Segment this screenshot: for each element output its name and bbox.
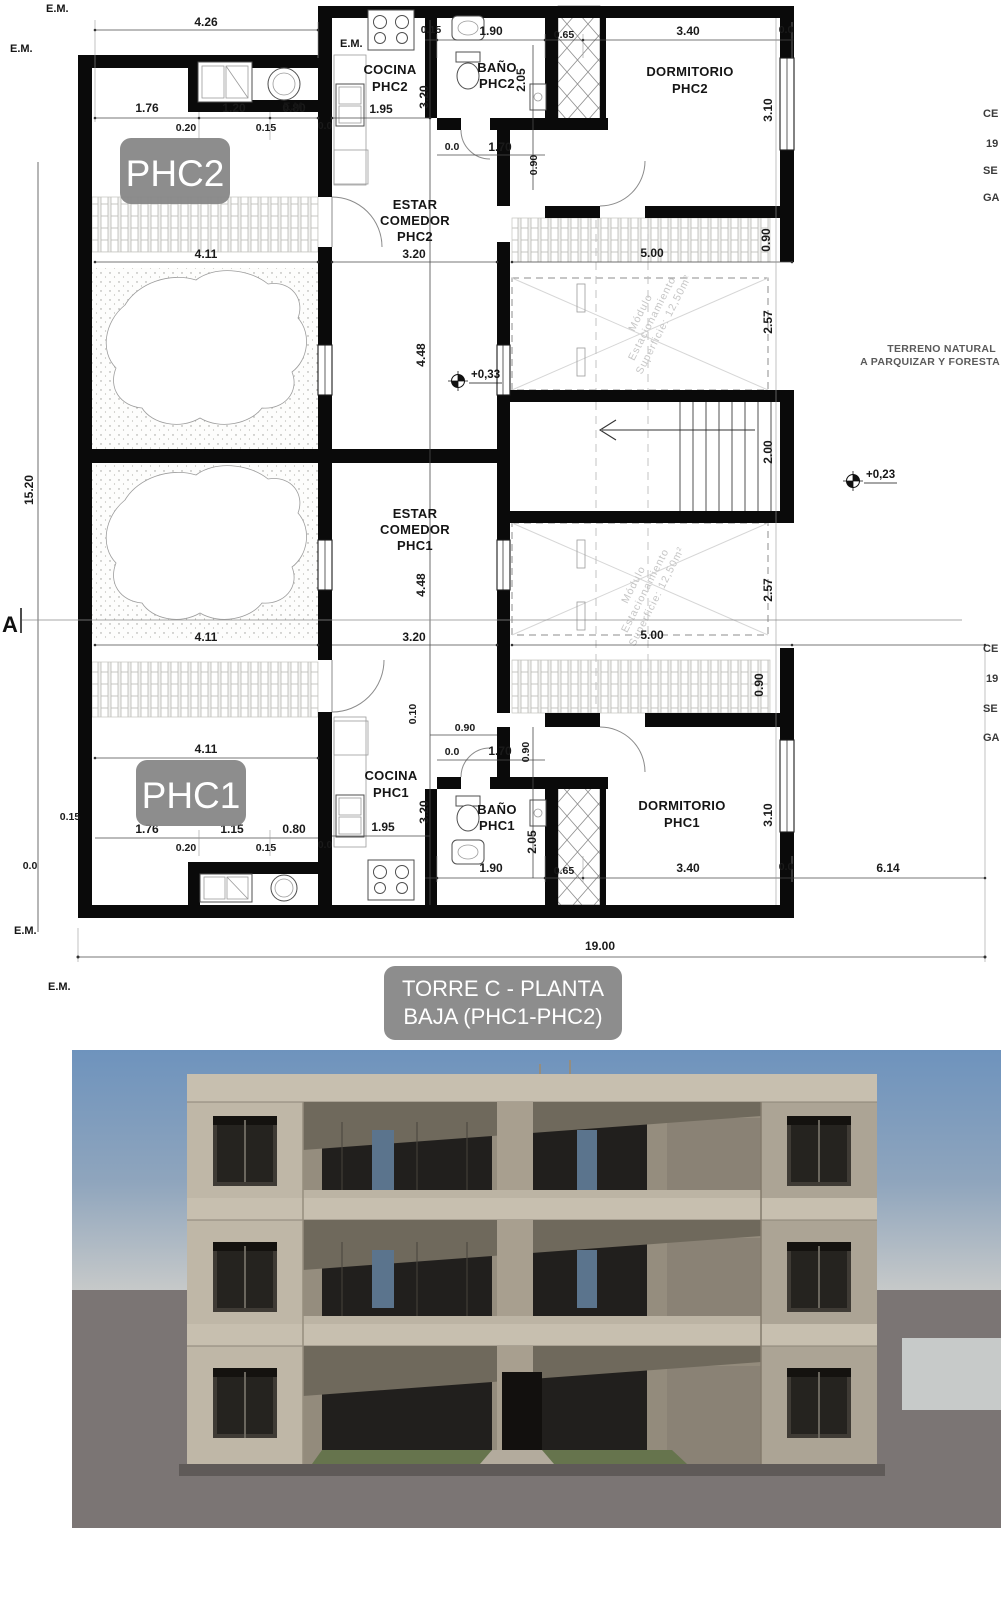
svg-text:A PARQUIZAR Y FORESTA: A PARQUIZAR Y FORESTA bbox=[860, 356, 1000, 368]
svg-text:4.11: 4.11 bbox=[195, 247, 218, 261]
svg-text:2.57: 2.57 bbox=[761, 578, 775, 602]
svg-text:COCINA: COCINA bbox=[364, 768, 417, 783]
render-floor2 bbox=[303, 1220, 761, 1324]
svg-text:E.M.: E.M. bbox=[283, 101, 306, 113]
svg-text:6.14: 6.14 bbox=[876, 861, 900, 875]
svg-text:0.0: 0.0 bbox=[318, 120, 333, 132]
svg-text:1.70: 1.70 bbox=[488, 140, 512, 154]
level-marker-033: +0,33 bbox=[448, 369, 502, 391]
svg-text:E.M.: E.M. bbox=[48, 981, 71, 993]
svg-text:PHC1: PHC1 bbox=[373, 785, 409, 800]
svg-text:2.05: 2.05 bbox=[525, 830, 539, 854]
svg-text:E.M.: E.M. bbox=[340, 38, 363, 50]
svg-text:0.90: 0.90 bbox=[455, 722, 476, 734]
svg-text:2.57: 2.57 bbox=[761, 310, 775, 334]
svg-text:PHC2: PHC2 bbox=[372, 79, 408, 94]
svg-text:+0,33: +0,33 bbox=[471, 369, 500, 381]
svg-text:CE: CE bbox=[983, 108, 998, 120]
render-floor1 bbox=[303, 1102, 761, 1198]
svg-text:PHC2: PHC2 bbox=[397, 229, 433, 244]
svg-text:4.48: 4.48 bbox=[414, 343, 428, 367]
svg-text:GA: GA bbox=[983, 732, 1000, 744]
svg-text:15.20: 15.20 bbox=[22, 475, 36, 505]
staircase bbox=[600, 402, 771, 511]
svg-text:4.11: 4.11 bbox=[195, 630, 218, 644]
svg-text:2.00: 2.00 bbox=[761, 440, 775, 464]
svg-text:3.20: 3.20 bbox=[402, 247, 426, 261]
svg-text:0.90: 0.90 bbox=[520, 742, 532, 763]
screenshot-page: Módulo Estacionamiento Superficie: 12,50… bbox=[0, 0, 1001, 1600]
svg-text:ESTAR: ESTAR bbox=[393, 197, 438, 212]
svg-text:1.95: 1.95 bbox=[369, 102, 393, 116]
svg-text:0.0: 0.0 bbox=[318, 839, 333, 851]
svg-text:5.00: 5.00 bbox=[640, 246, 664, 260]
svg-text:SE: SE bbox=[983, 165, 998, 177]
render-floor3 bbox=[303, 1346, 761, 1464]
svg-text:4.26: 4.26 bbox=[194, 15, 218, 29]
building-render bbox=[72, 1050, 1001, 1528]
section-marker-a: A bbox=[2, 612, 18, 637]
svg-text:1.95: 1.95 bbox=[371, 820, 395, 834]
svg-text:3.40: 3.40 bbox=[676, 24, 700, 38]
svg-text:1.90: 1.90 bbox=[479, 861, 503, 875]
svg-text:0.0: 0.0 bbox=[445, 141, 460, 153]
svg-text:3.20: 3.20 bbox=[417, 800, 431, 824]
svg-text:0.90: 0.90 bbox=[759, 228, 773, 252]
svg-text:4.48: 4.48 bbox=[414, 573, 428, 597]
svg-text:E.M.: E.M. bbox=[10, 43, 33, 55]
svg-text:COCINA: COCINA bbox=[363, 62, 416, 77]
svg-text:GA: GA bbox=[983, 192, 1000, 204]
svg-text:CE: CE bbox=[983, 643, 998, 655]
building-render-image bbox=[72, 1050, 1001, 1528]
svg-text:3.40: 3.40 bbox=[676, 861, 700, 875]
svg-text:0.90: 0.90 bbox=[528, 155, 540, 176]
svg-text:0.10: 0.10 bbox=[407, 704, 419, 725]
svg-text:DORMITORIO: DORMITORIO bbox=[638, 798, 725, 813]
svg-text:ESTAR: ESTAR bbox=[393, 506, 438, 521]
render-building bbox=[187, 1060, 877, 1464]
svg-text:1.70: 1.70 bbox=[488, 744, 512, 758]
svg-text:BAJA (PHC1-PHC2): BAJA (PHC1-PHC2) bbox=[403, 1004, 602, 1029]
svg-text:1.76: 1.76 bbox=[135, 101, 159, 115]
svg-text:TERRENO NATURAL: TERRENO NATURAL bbox=[887, 343, 996, 355]
svg-text:0.15: 0.15 bbox=[256, 122, 277, 134]
svg-text:COMEDOR: COMEDOR bbox=[380, 522, 450, 537]
svg-text:E.M.: E.M. bbox=[14, 925, 37, 937]
svg-text:0.0: 0.0 bbox=[445, 746, 460, 758]
svg-text:0.65: 0.65 bbox=[554, 29, 575, 41]
svg-text:PHC1: PHC1 bbox=[479, 818, 515, 833]
render-distant-wall bbox=[902, 1338, 1001, 1410]
svg-text:4.11: 4.11 bbox=[195, 742, 218, 756]
svg-text:0.0: 0.0 bbox=[23, 860, 38, 872]
svg-text:PHC2: PHC2 bbox=[126, 153, 225, 194]
svg-text:3.20: 3.20 bbox=[417, 85, 431, 109]
svg-text:0.90: 0.90 bbox=[752, 673, 766, 697]
svg-text:BAÑO: BAÑO bbox=[477, 802, 516, 817]
svg-text:0.20: 0.20 bbox=[176, 842, 197, 854]
svg-text:1.90: 1.90 bbox=[479, 24, 503, 38]
svg-text:PHC1: PHC1 bbox=[664, 815, 700, 830]
svg-text:PHC2: PHC2 bbox=[479, 76, 515, 91]
svg-text:3.10: 3.10 bbox=[761, 803, 775, 827]
svg-text:5.00: 5.00 bbox=[640, 628, 664, 642]
svg-text:0.65: 0.65 bbox=[554, 865, 575, 877]
level-marker-023: +0,23 bbox=[843, 469, 897, 491]
plan-title-badge: TORRE C - PLANTA BAJA (PHC1-PHC2) bbox=[384, 966, 622, 1040]
svg-text:19: 19 bbox=[986, 138, 998, 150]
svg-text:PHC2: PHC2 bbox=[672, 81, 708, 96]
svg-text:COMEDOR: COMEDOR bbox=[380, 213, 450, 228]
svg-text:0.15: 0.15 bbox=[421, 24, 442, 36]
svg-text:A: A bbox=[2, 612, 18, 637]
wardrobes bbox=[558, 6, 600, 905]
svg-text:TORRE C - PLANTA: TORRE C - PLANTA bbox=[402, 976, 604, 1001]
svg-text:PHC1: PHC1 bbox=[142, 775, 241, 816]
svg-text:E.M.: E.M. bbox=[46, 3, 69, 15]
svg-text:3.10: 3.10 bbox=[761, 98, 775, 122]
svg-text:19.00: 19.00 bbox=[585, 939, 615, 953]
svg-text:0.20: 0.20 bbox=[176, 122, 197, 134]
floor-plan-drawing: Módulo Estacionamiento Superficie: 12,50… bbox=[0, 0, 1001, 1048]
svg-text:3.20: 3.20 bbox=[402, 630, 426, 644]
svg-text:0.0: 0.0 bbox=[779, 24, 794, 36]
svg-text:0.15: 0.15 bbox=[256, 842, 277, 854]
svg-text:PHC1: PHC1 bbox=[397, 538, 433, 553]
svg-text:+0,23: +0,23 bbox=[866, 469, 895, 481]
svg-text:DORMITORIO: DORMITORIO bbox=[646, 64, 733, 79]
svg-text:1.20: 1.20 bbox=[222, 101, 246, 115]
svg-text:0.0: 0.0 bbox=[779, 861, 794, 873]
svg-text:BAÑO: BAÑO bbox=[477, 60, 516, 75]
svg-text:0.80: 0.80 bbox=[282, 822, 306, 836]
svg-text:19: 19 bbox=[986, 673, 998, 685]
badge-phc2: PHC2 bbox=[120, 138, 230, 204]
margin-notes: TERRENO NATURAL A PARQUIZAR Y FORESTA CE… bbox=[860, 108, 1000, 744]
badge-phc1: PHC1 bbox=[136, 760, 246, 826]
svg-text:SE: SE bbox=[983, 703, 998, 715]
svg-text:0.15: 0.15 bbox=[60, 811, 81, 823]
